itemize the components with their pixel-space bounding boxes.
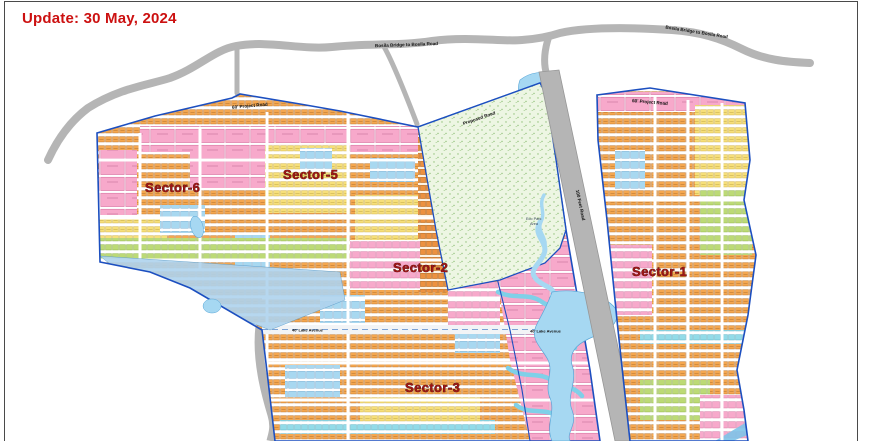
sector-3-label: Sector-3 [405,380,460,395]
sector-5-label: Sector-5 [283,167,338,182]
estate-map: Bosila Bridge to Bosila Road Bosila Brid… [0,0,871,441]
map-page: Update: 30 May, 2024 [0,0,871,441]
lake-avenue-label-left: 40' Lake Avenue [292,328,324,333]
sector-2-label: Sector-2 [393,260,448,275]
branch-road-to-diagonal [545,36,549,72]
sector-6-label: Sector-6 [145,180,200,195]
lake-avenue-label-right: 40' Lake Avenue [530,329,562,334]
sector-1-label: Sector-1 [632,264,687,279]
green-area-label-line1: Eco Park [526,217,542,221]
pond-west-2 [203,299,221,313]
green-area-label-line2: Area [530,222,539,226]
branch-road-to-green [383,45,417,124]
